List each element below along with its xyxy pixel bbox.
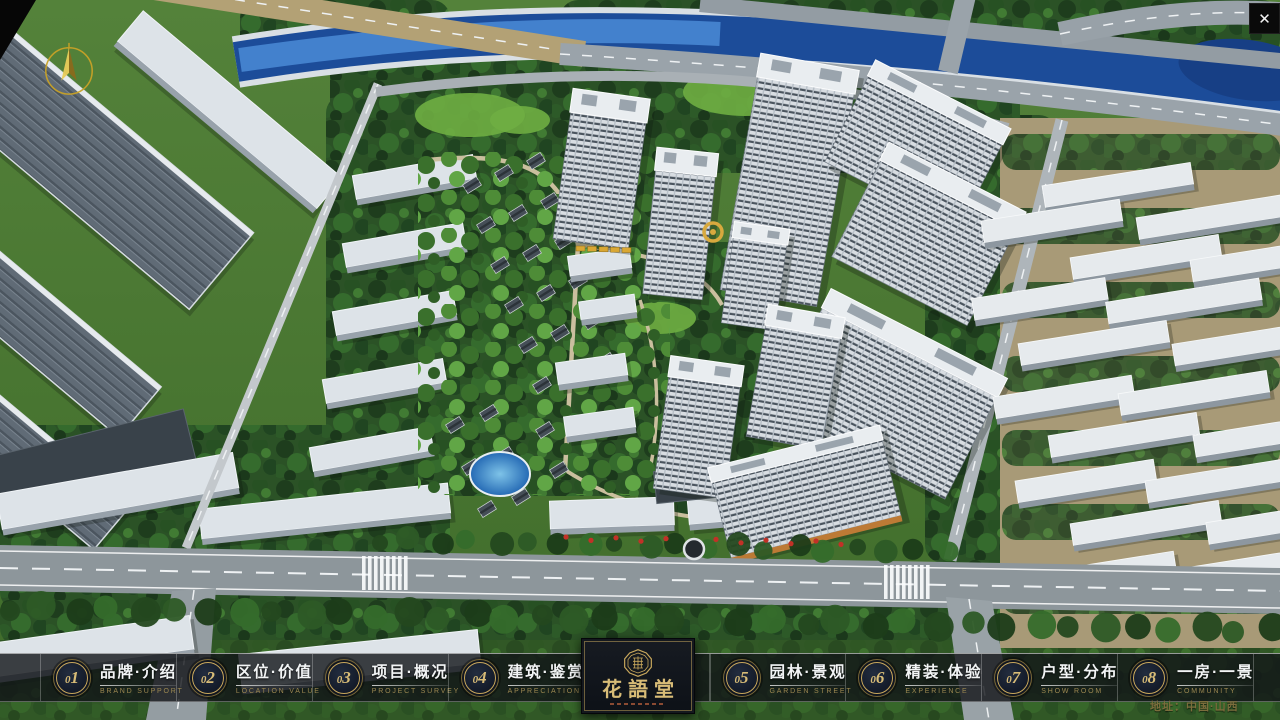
nav-number: 03 [337,669,351,686]
nav-label-zh: 一房·一景 [1177,660,1254,682]
nav-label-en: COMMUNITY [1177,688,1236,695]
nav-number: 02 [201,669,215,686]
nav-item-location[interactable]: 02 区位·价值LOCATION VALUE [176,654,312,701]
nav-number-badge: 01 [53,659,91,697]
masterplan-render [0,0,1280,720]
nav-number: 04 [473,669,487,686]
nav-divider [236,685,312,686]
nav-divider [1041,685,1117,686]
nav-label-en: GARDEN STREET [770,688,853,695]
address-label: 地址：中国·山西 [1150,698,1239,714]
nav-item-brand[interactable]: 01 品牌·介绍BRAND SUPPORT [40,654,176,701]
nav-divider [372,685,448,686]
nav-label-zh: 园林·景观 [770,660,847,682]
nav-item-floorplan[interactable]: 07 户型·分布SHOW ROOM [981,654,1117,701]
nav-label-en: BRAND SUPPORT [100,688,184,695]
nav-item-project[interactable]: 03 项目·概况PROJECT SURVEY [312,654,448,701]
nav-label-en: EXPERIENCE [905,688,968,695]
nav-label-zh: 户型·分布 [1041,660,1118,682]
nav-label-zh: 项目·概况 [372,660,449,682]
compass-north-icon [40,40,98,98]
nav-number-badge: 06 [858,659,896,697]
nav-divider [100,685,176,686]
brand-subtitle-mark [610,703,666,705]
nav-divider [905,685,981,686]
nav-item-community[interactable]: 08 一房·一景COMMUNITY [1117,654,1254,701]
nav-label-zh: 区位·价值 [236,660,313,682]
nav-number: 08 [1142,669,1156,686]
brand-emblem-icon [623,648,653,678]
nav-number: 01 [65,669,79,686]
nav-number-badge: 03 [325,659,363,697]
close-button[interactable]: ✕ [1249,3,1280,34]
nav-item-garden[interactable]: 05 园林·景观GARDEN STREET [710,654,846,701]
nav-label-zh: 建筑·鉴赏 [508,660,585,682]
brand-title: 花語堂 [596,680,680,700]
nav-item-architecture[interactable]: 04 建筑·鉴赏APPRECIATION [448,654,584,701]
nav-number-badge: 08 [1130,659,1168,697]
nav-divider [770,685,846,686]
nav-label-en: APPRECIATION [508,688,581,695]
nav-number: 05 [735,669,749,686]
nav-number-badge: 04 [461,659,499,697]
nav-number: 06 [870,669,884,686]
masterplan-svg [0,0,1280,720]
logo-panel[interactable]: 花語堂 [581,638,695,714]
nav-divider [1177,685,1253,686]
nav-number-badge: 02 [189,659,227,697]
nav-item-interior[interactable]: 06 精装·体验EXPERIENCE [845,654,981,701]
nav-divider [508,685,584,686]
nav-label-en: LOCATION VALUE [236,688,321,695]
nav-number-badge: 07 [994,659,1032,697]
pond [470,452,530,496]
nav-label-zh: 品牌·介绍 [100,660,177,682]
nav-number: 07 [1006,669,1020,686]
nav-label-zh: 精装·体验 [905,660,982,682]
nav-number-badge: 05 [723,659,761,697]
nav-label-en: SHOW ROOM [1041,688,1103,695]
